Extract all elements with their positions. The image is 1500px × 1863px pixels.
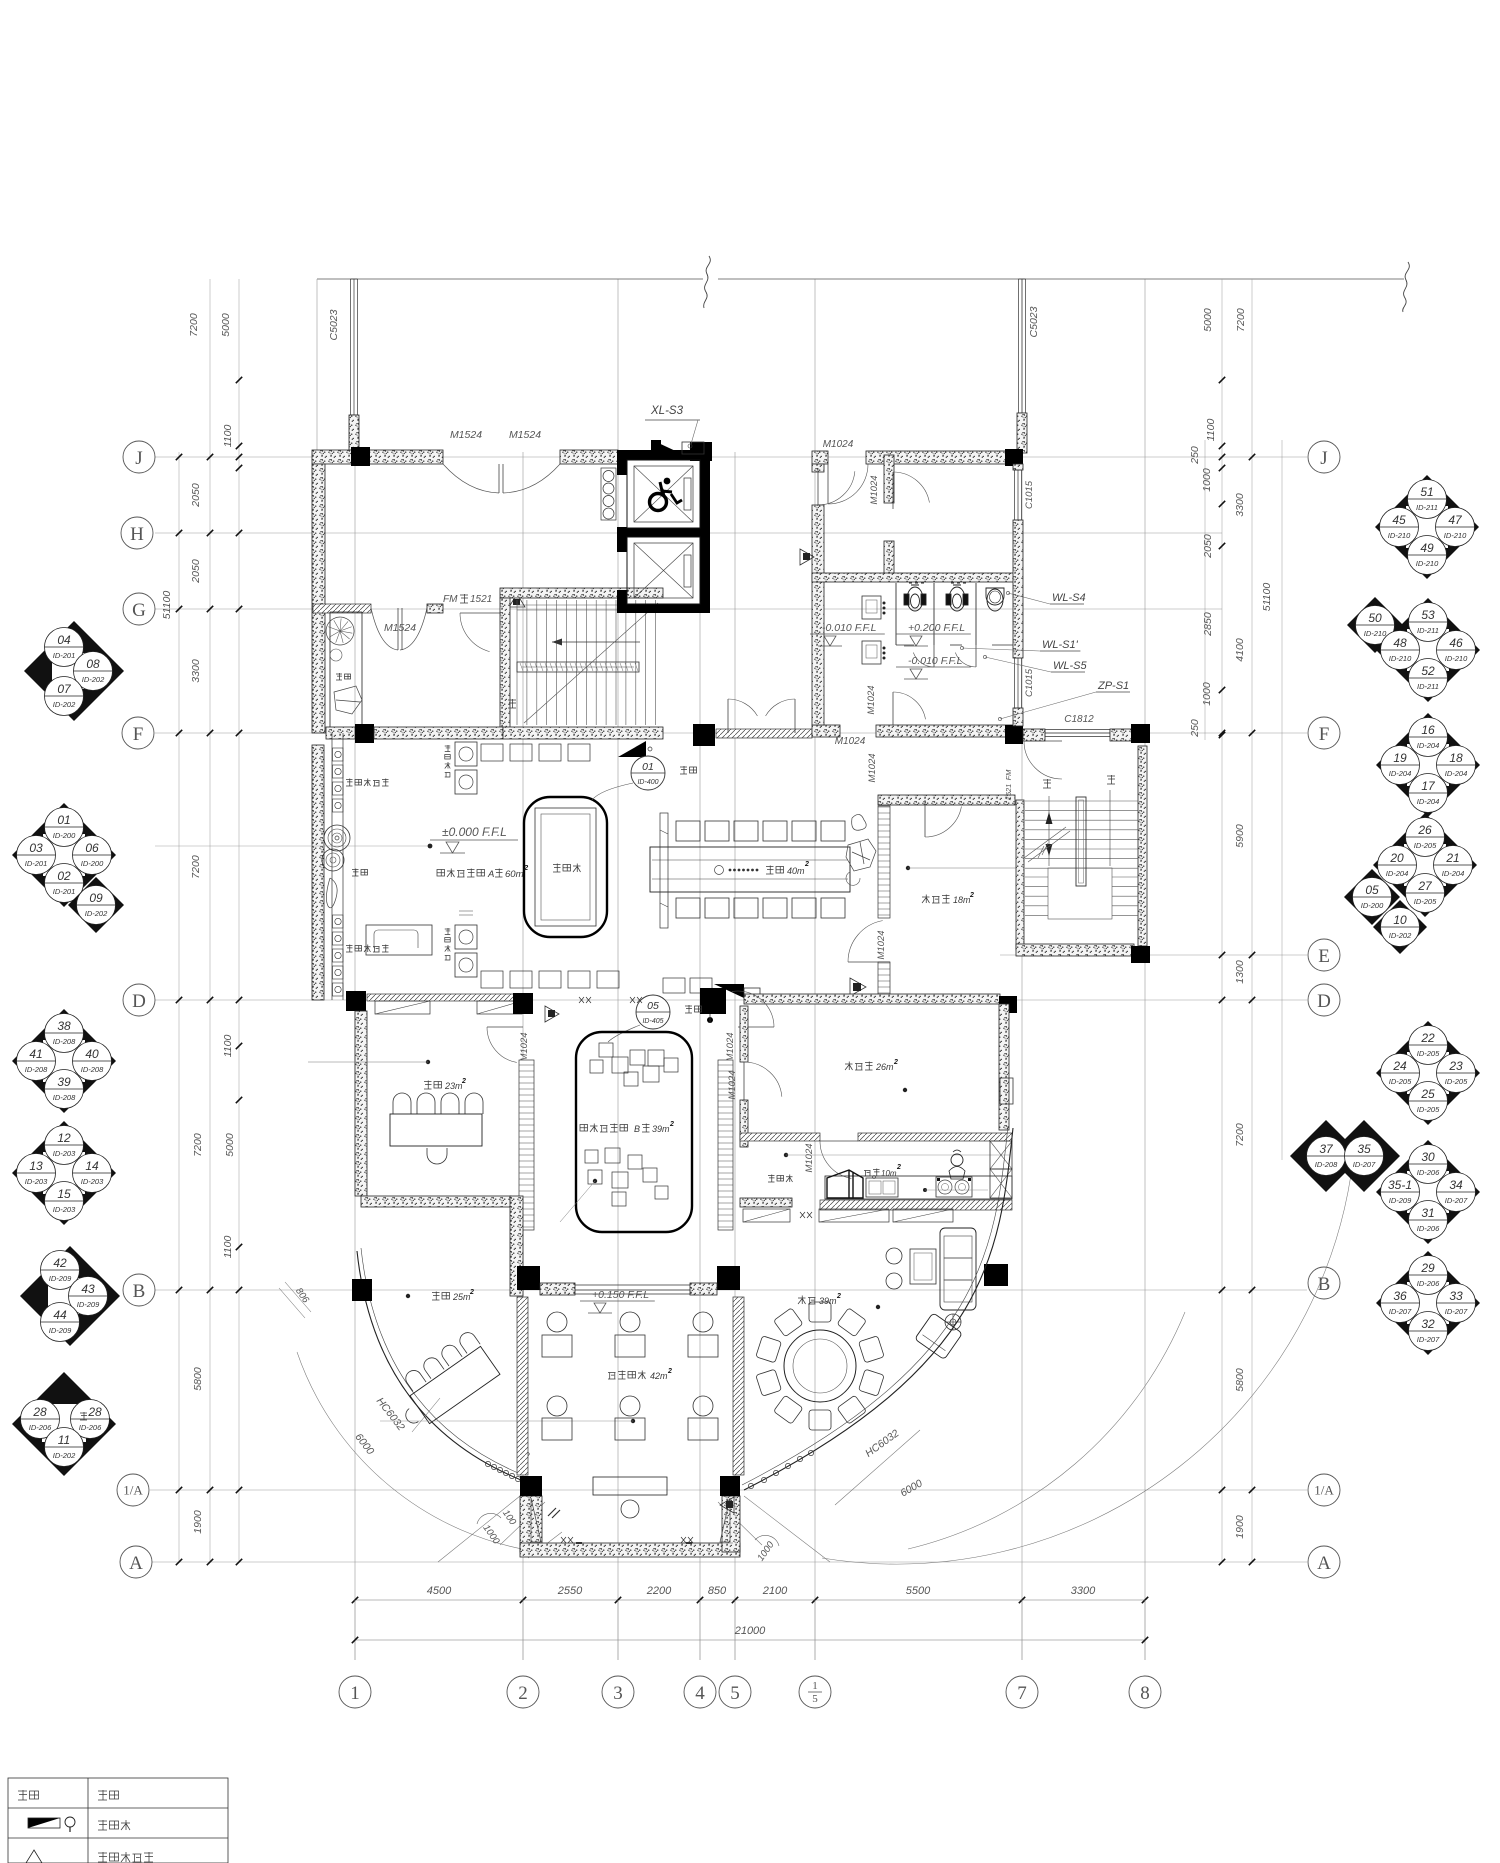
svg-text:7200: 7200 (1234, 1123, 1246, 1147)
svg-text:5000: 5000 (220, 313, 232, 337)
svg-text:21000: 21000 (734, 1625, 766, 1637)
svg-text:D: D (132, 991, 146, 1012)
svg-text:3300: 3300 (190, 659, 202, 683)
svg-text:42m: 42m (650, 1371, 668, 1381)
svg-text:34: 34 (1449, 1178, 1463, 1192)
svg-text:31: 31 (1421, 1206, 1434, 1220)
svg-text:1000: 1000 (1201, 468, 1213, 492)
svg-text:ID-405: ID-405 (642, 1018, 663, 1025)
svg-text:A: A (129, 1553, 143, 1574)
svg-text:E: E (1318, 946, 1330, 967)
svg-text:03: 03 (29, 841, 43, 855)
svg-text:5: 5 (730, 1683, 740, 1704)
svg-text:ID-400: ID-400 (637, 779, 658, 786)
svg-text:5000: 5000 (1202, 308, 1214, 332)
svg-text:C1015: C1015 (1024, 668, 1035, 697)
svg-text:M1024: M1024 (869, 475, 880, 504)
svg-text:ID-201: ID-201 (53, 651, 76, 660)
svg-text:-0.010 F.F.L: -0.010 F.F.L (908, 655, 963, 667)
svg-text:ID-209: ID-209 (1389, 1196, 1412, 1205)
svg-text:3300: 3300 (1071, 1585, 1096, 1597)
svg-text:ID-205: ID-205 (1417, 1105, 1440, 1114)
svg-text:ID-207: ID-207 (1389, 1307, 1412, 1316)
svg-text:ID-209: ID-209 (77, 1300, 100, 1309)
svg-text:2: 2 (893, 1059, 898, 1066)
svg-text:ID-208: ID-208 (81, 1065, 104, 1074)
svg-text:01: 01 (642, 761, 654, 773)
svg-text:2: 2 (523, 863, 529, 872)
svg-text:32: 32 (1421, 1317, 1435, 1331)
svg-text:ID-208: ID-208 (53, 1093, 76, 1102)
svg-text:2050: 2050 (1202, 534, 1214, 559)
svg-text:41: 41 (29, 1047, 42, 1061)
svg-text:WL-S4: WL-S4 (1052, 592, 1086, 604)
svg-text:35-1: 35-1 (1388, 1178, 1412, 1192)
svg-text:ID-207: ID-207 (1417, 1335, 1440, 1344)
svg-text:39m: 39m (819, 1296, 837, 1306)
svg-text:M1024: M1024 (866, 685, 877, 714)
svg-text:51: 51 (1420, 485, 1433, 499)
svg-text:M1024: M1024 (804, 1143, 815, 1172)
svg-text:ID-205: ID-205 (1414, 897, 1437, 906)
svg-text:28: 28 (32, 1405, 47, 1419)
svg-text:ID-209: ID-209 (49, 1274, 72, 1283)
svg-text:M1524: M1524 (384, 622, 416, 634)
svg-text:ID-203: ID-203 (81, 1177, 104, 1186)
svg-text:2550: 2550 (557, 1585, 583, 1597)
svg-text:2: 2 (669, 1121, 674, 1128)
svg-text:F: F (1319, 724, 1330, 745)
svg-text:1900: 1900 (192, 1510, 204, 1534)
svg-text:M1024: M1024 (867, 753, 878, 782)
svg-text:ID-208: ID-208 (1315, 1160, 1338, 1169)
svg-text:M1024: M1024 (876, 930, 887, 959)
svg-text:51100: 51100 (161, 591, 173, 620)
svg-text:3: 3 (613, 1683, 623, 1704)
svg-text:3300: 3300 (1234, 493, 1246, 517)
svg-text:1100: 1100 (1205, 419, 1217, 442)
svg-text:35: 35 (1357, 1142, 1371, 1156)
svg-text:17: 17 (1421, 779, 1436, 793)
svg-text:7200: 7200 (188, 313, 200, 337)
svg-text:M1524: M1524 (450, 429, 482, 441)
svg-text:53: 53 (1421, 608, 1435, 622)
svg-text:ID-204: ID-204 (1386, 869, 1409, 878)
svg-text:ID-203: ID-203 (53, 1149, 76, 1158)
svg-text:ID-203: ID-203 (53, 1205, 76, 1214)
svg-text:25: 25 (1420, 1087, 1435, 1101)
svg-text:ID-210: ID-210 (1444, 531, 1467, 540)
svg-text:22: 22 (1420, 1031, 1435, 1045)
svg-text:A: A (487, 869, 494, 880)
svg-text:FM: FM (443, 594, 458, 605)
svg-text:01: 01 (57, 813, 70, 827)
svg-text:25m: 25m (452, 1292, 471, 1302)
svg-text:1: 1 (350, 1683, 360, 1704)
svg-text:26m: 26m (875, 1062, 894, 1072)
svg-text:05: 05 (647, 1000, 659, 1012)
svg-text:ID-200: ID-200 (1361, 901, 1384, 910)
svg-text:27: 27 (1417, 879, 1433, 893)
svg-text:1100: 1100 (222, 1236, 234, 1259)
svg-text:13: 13 (29, 1159, 43, 1173)
svg-text:24: 24 (1392, 1059, 1407, 1073)
svg-text:ZP-S1: ZP-S1 (1097, 680, 1129, 692)
svg-text:16: 16 (1421, 723, 1435, 737)
svg-text:40m: 40m (787, 866, 805, 876)
svg-text:ID-202: ID-202 (82, 675, 105, 684)
svg-text:ID-204: ID-204 (1417, 797, 1440, 806)
svg-text:ID-205: ID-205 (1417, 1049, 1440, 1058)
svg-text:1000: 1000 (1201, 682, 1213, 706)
svg-text:7: 7 (1017, 1683, 1027, 1704)
svg-text:ID-210: ID-210 (1364, 629, 1387, 638)
svg-text:51100: 51100 (1261, 583, 1273, 612)
svg-text:1: 1 (812, 1680, 818, 1692)
svg-text:C1015: C1015 (1024, 480, 1035, 509)
svg-text:ID-204: ID-204 (1442, 869, 1465, 878)
svg-text:ID-204: ID-204 (1417, 741, 1440, 750)
svg-text:1100: 1100 (222, 425, 234, 448)
svg-text:M1024: M1024 (823, 439, 854, 450)
svg-text:37: 37 (1319, 1142, 1334, 1156)
svg-text:08: 08 (86, 657, 100, 671)
svg-text:ID-207: ID-207 (1353, 1160, 1376, 1169)
svg-text:+0.150 F.F.L: +0.150 F.F.L (592, 1289, 649, 1301)
svg-text:ID-211: ID-211 (1416, 503, 1438, 512)
svg-text:ID-211: ID-211 (1417, 682, 1439, 691)
svg-text:ID-207: ID-207 (1445, 1307, 1468, 1316)
svg-text:06: 06 (85, 841, 99, 855)
svg-text:ID-201: ID-201 (25, 859, 48, 868)
svg-text:7200: 7200 (192, 1133, 204, 1157)
svg-text:XL-S3: XL-S3 (650, 405, 684, 417)
svg-text:1300: 1300 (1234, 960, 1246, 984)
svg-text:23m: 23m (444, 1081, 463, 1091)
svg-text:2: 2 (896, 1164, 901, 1171)
svg-text:18: 18 (1449, 751, 1463, 765)
svg-text:28: 28 (87, 1405, 102, 1419)
svg-text:H: H (130, 524, 144, 545)
svg-text:5900: 5900 (1234, 824, 1246, 848)
svg-text:+0.200 F.F.L: +0.200 F.F.L (908, 622, 965, 634)
svg-text:±0.000 F.F.L: ±0.000 F.F.L (442, 825, 507, 839)
svg-text:19: 19 (1393, 751, 1407, 765)
svg-text:ID-206: ID-206 (1417, 1279, 1440, 1288)
svg-text:43: 43 (81, 1282, 95, 1296)
svg-text:ID-202: ID-202 (1389, 931, 1412, 940)
svg-text:B: B (634, 1124, 640, 1134)
svg-text:18m: 18m (953, 895, 971, 905)
svg-text:C1812: C1812 (1064, 714, 1094, 725)
svg-text:250: 250 (1189, 719, 1201, 738)
svg-text:2: 2 (518, 1683, 528, 1704)
svg-text:42: 42 (53, 1256, 67, 1270)
svg-text:ID-208: ID-208 (25, 1065, 48, 1074)
svg-text:ID-210: ID-210 (1445, 654, 1468, 663)
svg-text:ID-200: ID-200 (53, 831, 76, 840)
svg-text:11: 11 (58, 1433, 70, 1447)
svg-text:M1524: M1524 (509, 429, 541, 441)
svg-text:2200: 2200 (646, 1585, 672, 1597)
svg-text:ID-208: ID-208 (53, 1037, 76, 1046)
svg-text:ID-202: ID-202 (85, 909, 108, 918)
svg-text:ID-202: ID-202 (53, 700, 76, 709)
svg-text:-0.010 F.F.L: -0.010 F.F.L (822, 622, 877, 634)
svg-text:1/A: 1/A (1314, 1483, 1334, 1498)
svg-text:14: 14 (85, 1159, 99, 1173)
svg-text:ID-204: ID-204 (1445, 769, 1468, 778)
svg-text:2: 2 (461, 1078, 466, 1085)
svg-text:12: 12 (57, 1131, 71, 1145)
svg-text:45: 45 (1392, 513, 1406, 527)
svg-text:40: 40 (85, 1047, 99, 1061)
svg-text:4: 4 (695, 1683, 705, 1704)
svg-text:850: 850 (708, 1585, 727, 1597)
svg-text:M1024: M1024 (727, 1070, 738, 1099)
svg-text:21: 21 (1445, 851, 1459, 865)
svg-text:ID-206: ID-206 (1417, 1168, 1440, 1177)
svg-text:39: 39 (57, 1075, 71, 1089)
svg-text:M1024: M1024 (835, 736, 866, 747)
svg-text:G: G (132, 600, 146, 621)
svg-text:10: 10 (1393, 913, 1407, 927)
svg-text:ID-210: ID-210 (1416, 559, 1439, 568)
svg-text:44: 44 (53, 1308, 67, 1322)
svg-text:52: 52 (1421, 664, 1435, 678)
svg-text:5000: 5000 (224, 1133, 236, 1157)
svg-text:ID-205: ID-205 (1445, 1077, 1468, 1086)
svg-text:J: J (1320, 448, 1327, 469)
svg-text:30: 30 (1421, 1150, 1435, 1164)
svg-text:4500: 4500 (427, 1585, 452, 1597)
svg-text:2: 2 (469, 1289, 474, 1296)
svg-text:20: 20 (1389, 851, 1404, 865)
svg-text:250: 250 (1189, 446, 1201, 465)
svg-text:ID-206: ID-206 (29, 1423, 52, 1432)
svg-text:15: 15 (57, 1187, 71, 1201)
svg-text:2: 2 (969, 892, 974, 899)
svg-text:2: 2 (804, 861, 809, 868)
svg-text:49: 49 (1420, 541, 1434, 555)
svg-text:ID-207: ID-207 (1445, 1196, 1468, 1205)
svg-text:J: J (135, 448, 142, 469)
svg-text:2: 2 (667, 1368, 672, 1375)
svg-text:ID-200: ID-200 (81, 859, 104, 868)
svg-text:2050: 2050 (190, 559, 202, 584)
svg-text:2100: 2100 (762, 1585, 788, 1597)
svg-text:46: 46 (1449, 636, 1463, 650)
svg-text:39m: 39m (652, 1124, 670, 1134)
svg-text:60m: 60m (505, 869, 524, 880)
svg-text:48: 48 (1393, 636, 1407, 650)
svg-text:ID-206: ID-206 (79, 1423, 102, 1432)
svg-text:ID-211: ID-211 (1417, 626, 1439, 635)
svg-text:1100: 1100 (222, 1035, 234, 1058)
svg-text:ID-204: ID-204 (1389, 769, 1412, 778)
svg-text:ID-205: ID-205 (1389, 1077, 1412, 1086)
svg-text:5800: 5800 (192, 1367, 204, 1391)
svg-text:C5023: C5023 (328, 309, 340, 340)
svg-text:F: F (133, 724, 144, 745)
svg-text:WL-S5: WL-S5 (1053, 660, 1088, 672)
svg-text:36: 36 (1393, 1289, 1407, 1303)
svg-text:4100: 4100 (1234, 638, 1246, 662)
svg-text:04: 04 (57, 633, 71, 647)
svg-text:ID-206: ID-206 (1417, 1224, 1440, 1233)
svg-text:ID-205: ID-205 (1414, 841, 1437, 850)
svg-text:M1024: M1024 (519, 1032, 530, 1061)
svg-text:WL-S1': WL-S1' (1042, 639, 1079, 651)
svg-text:C5023: C5023 (1028, 306, 1040, 337)
svg-text:5: 5 (812, 1693, 818, 1705)
svg-text:2850: 2850 (1202, 612, 1214, 637)
svg-text:ID-210: ID-210 (1388, 531, 1411, 540)
svg-text:5800: 5800 (1234, 1368, 1246, 1392)
svg-text:5500: 5500 (906, 1585, 931, 1597)
svg-text:ID-201: ID-201 (53, 887, 76, 896)
svg-text:33: 33 (1449, 1289, 1463, 1303)
svg-text:1/A: 1/A (123, 1483, 143, 1498)
svg-text:1521: 1521 (1004, 784, 1013, 801)
svg-text:ID-203: ID-203 (25, 1177, 48, 1186)
svg-text:23: 23 (1448, 1059, 1463, 1073)
svg-text:D: D (1317, 991, 1331, 1012)
svg-text:ID-202: ID-202 (53, 1451, 76, 1460)
svg-text:2: 2 (836, 1293, 841, 1300)
svg-text:A: A (1317, 1553, 1331, 1574)
svg-text:M1024: M1024 (725, 1032, 736, 1061)
svg-text:05: 05 (1365, 883, 1379, 897)
svg-text:07: 07 (57, 682, 72, 696)
svg-text:10m: 10m (881, 1169, 897, 1178)
svg-text:B: B (133, 1281, 146, 1302)
svg-text:38: 38 (57, 1019, 71, 1033)
svg-text:26: 26 (1417, 823, 1432, 837)
svg-text:7200: 7200 (1235, 308, 1247, 332)
svg-text:ID-210: ID-210 (1389, 654, 1412, 663)
svg-text:ID-209: ID-209 (49, 1326, 72, 1335)
svg-text:29: 29 (1420, 1261, 1435, 1275)
svg-text:7200: 7200 (190, 855, 202, 879)
svg-text:02: 02 (57, 869, 71, 883)
svg-text:50: 50 (1368, 611, 1382, 625)
svg-text:09: 09 (89, 891, 103, 905)
svg-text:FM: FM (1004, 769, 1013, 781)
svg-text:1900: 1900 (1234, 1515, 1246, 1539)
svg-text:47: 47 (1448, 513, 1463, 527)
svg-text:2050: 2050 (190, 483, 202, 508)
svg-text:1521: 1521 (470, 594, 492, 605)
svg-text:8: 8 (1140, 1683, 1150, 1704)
